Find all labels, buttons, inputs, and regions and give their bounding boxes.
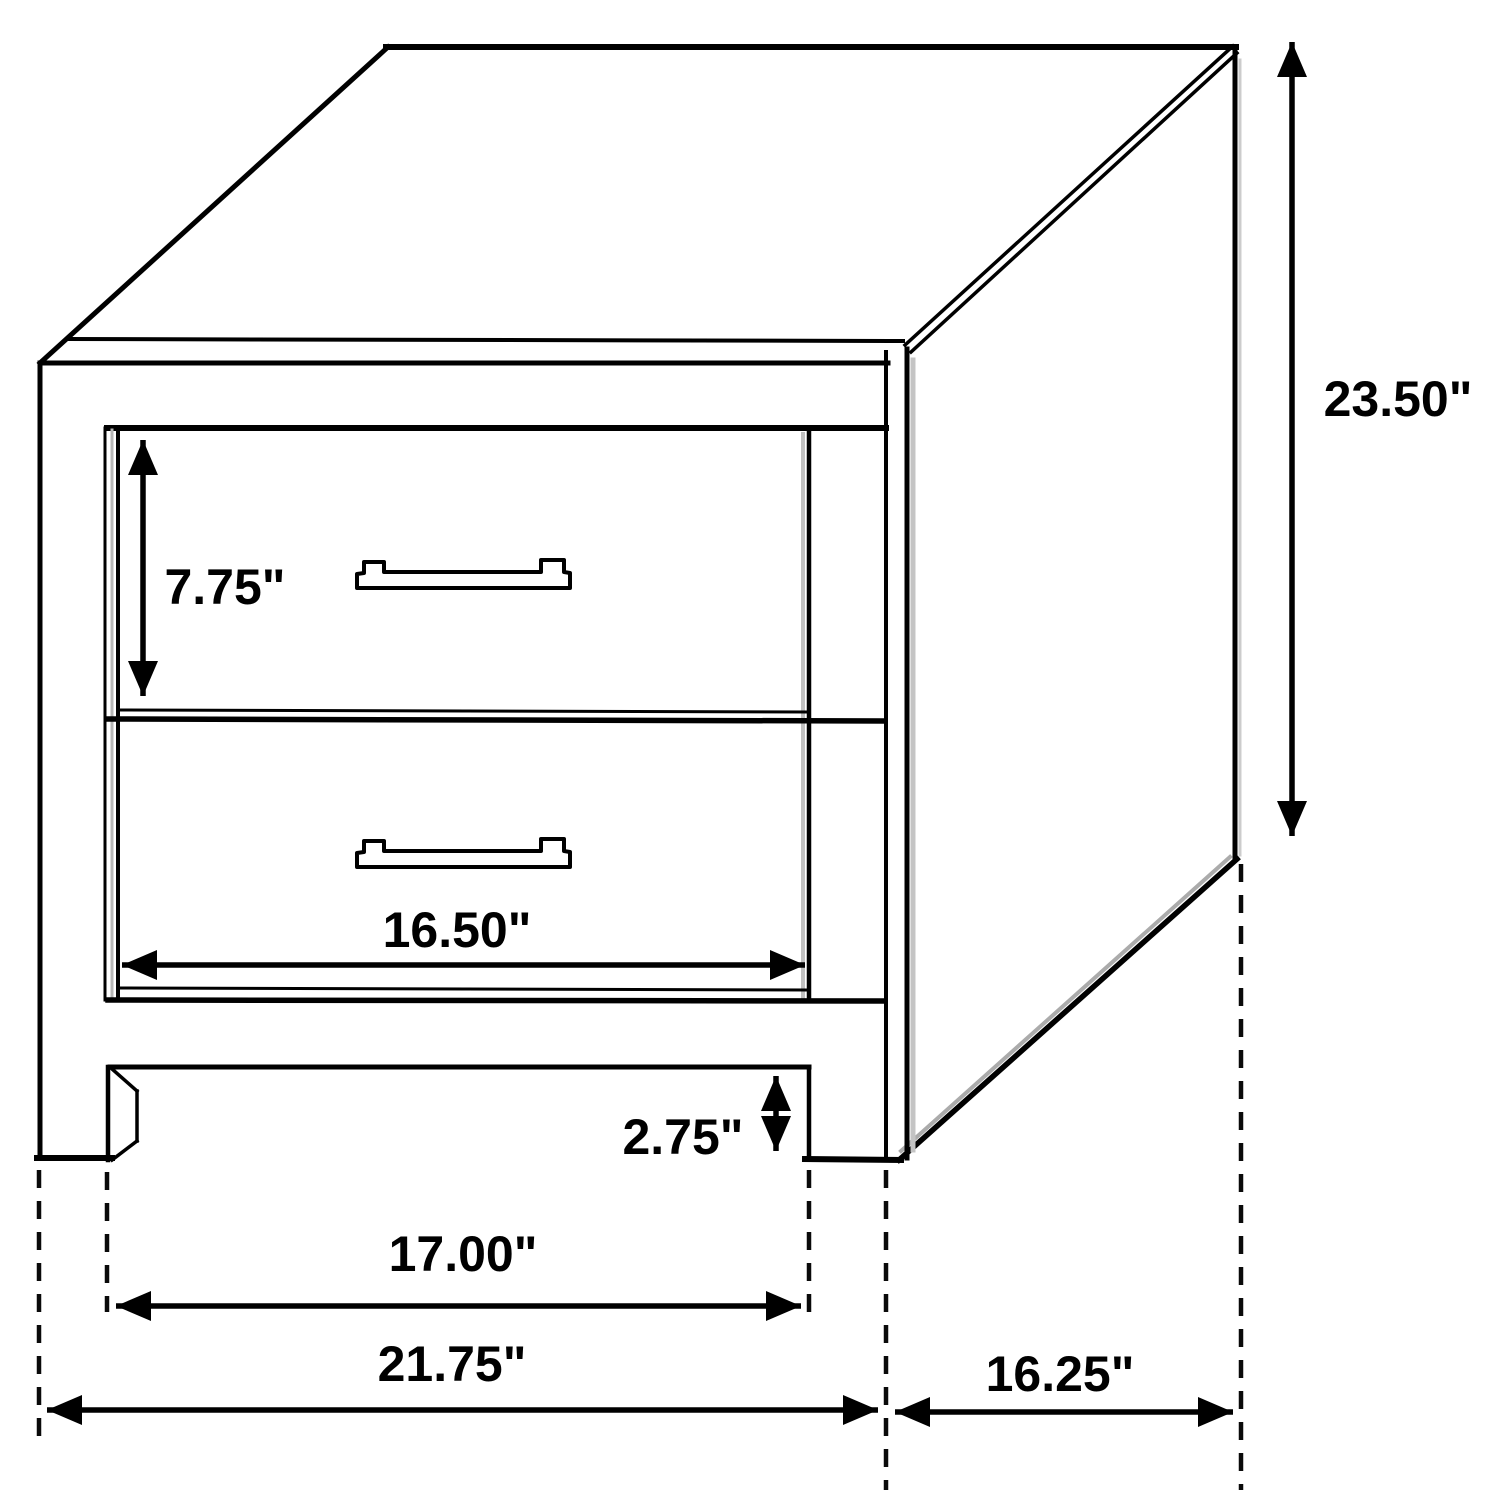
front-left-leg	[37, 1067, 137, 1160]
drawer-handle-icon	[357, 560, 570, 588]
dimension-diagram: 7.75" 16.50" 2.75" 17.00" 21.75" 16.25" …	[0, 0, 1500, 1500]
drawer-2	[108, 988, 884, 1001]
dimension-arrows	[47, 42, 1292, 1412]
nightstand-drawing: 7.75" 16.50" 2.75" 17.00" 21.75" 16.25" …	[0, 0, 1500, 1500]
drawer-1	[108, 710, 884, 721]
leg-height-label: 2.75"	[622, 1109, 743, 1165]
drawer-front-width-label: 16.50"	[383, 902, 532, 958]
overall-height-label: 23.50"	[1324, 371, 1473, 427]
side-depth-label: 16.25"	[986, 1346, 1135, 1402]
nightstand-front-frame	[40, 363, 886, 1158]
inner-leg-span-label: 17.00"	[389, 1226, 538, 1282]
drawer-handle-icon	[357, 839, 570, 867]
overall-width-label: 21.75"	[378, 1336, 527, 1392]
dimension-labels: 7.75" 16.50" 2.75" 17.00" 21.75" 16.25" …	[164, 371, 1472, 1402]
top-drawer-height-label: 7.75"	[164, 559, 285, 615]
nightstand-top-face	[40, 46, 1237, 363]
